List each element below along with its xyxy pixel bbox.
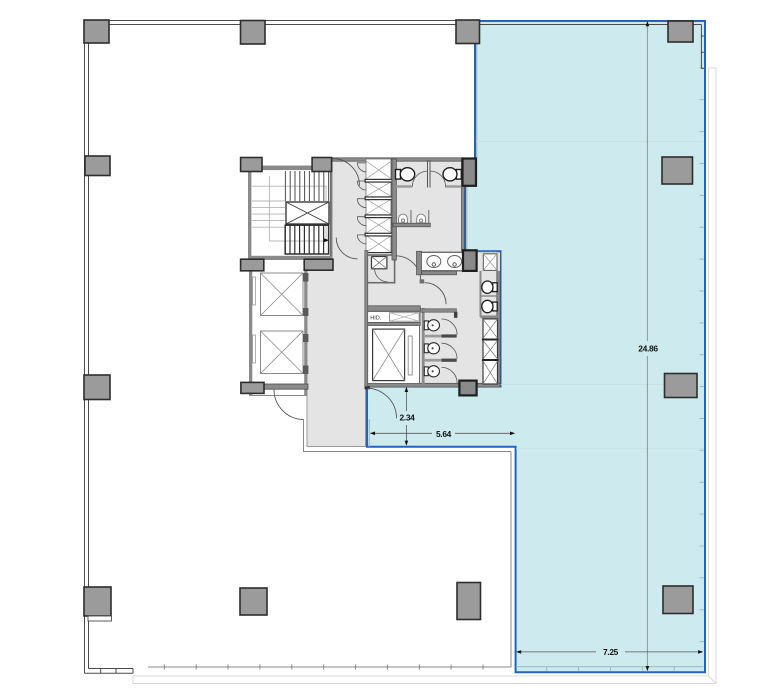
svg-text:7.25: 7.25 <box>603 647 619 657</box>
svg-text:2.34: 2.34 <box>399 413 415 423</box>
svg-text:HID.: HID. <box>370 316 382 322</box>
svg-text:24.86: 24.86 <box>638 344 658 354</box>
svg-text:5.64: 5.64 <box>436 429 452 439</box>
